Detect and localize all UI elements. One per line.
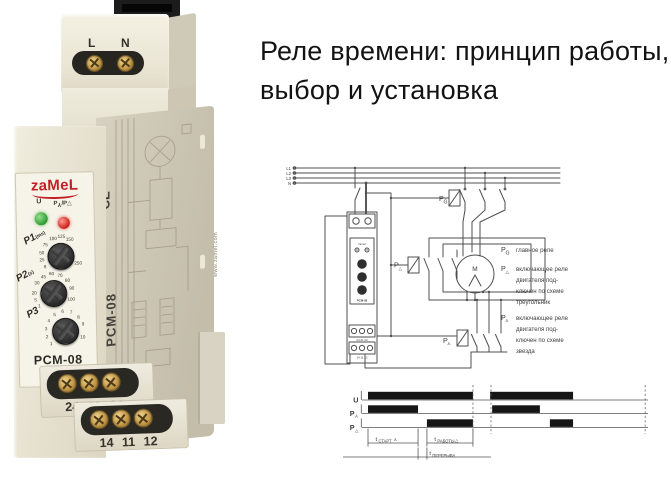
mini-terminals-2: 14 11 12 bbox=[356, 356, 367, 360]
knob-scale-value: 4 bbox=[42, 318, 56, 323]
legend-text-line: ключен по схеме bbox=[516, 288, 564, 295]
legend-text-line: включающее реле bbox=[516, 266, 569, 273]
sub-symbol: G bbox=[505, 250, 509, 256]
side-vent-slot bbox=[200, 255, 205, 270]
timing-bar bbox=[368, 392, 473, 400]
timing-annotation: t bbox=[376, 437, 378, 443]
device-top-side-face bbox=[166, 13, 196, 96]
motor-symbol: M bbox=[456, 255, 494, 293]
legend-text-line: треугольник bbox=[516, 299, 550, 306]
bus-label-l3: L3 bbox=[286, 176, 291, 181]
side-vent-slot bbox=[200, 135, 205, 150]
delta-symbol: △ bbox=[505, 269, 509, 274]
legend-text-line: ключен по схеме bbox=[516, 337, 564, 344]
knob-scale-value: 1 bbox=[44, 341, 58, 346]
timing-bar bbox=[368, 405, 418, 413]
timing-annotation-sub: РАБОТЫ bbox=[437, 439, 455, 444]
legend-text-line: главное реле bbox=[516, 247, 554, 254]
title-line-2: выбор и установка bbox=[260, 71, 670, 110]
terminal-screw bbox=[89, 410, 109, 430]
relay-symbol: zamel PCM-08 24 21 22 14 11 12 bbox=[347, 212, 377, 363]
mini-model: PCM-08 bbox=[357, 299, 368, 303]
star-symbol: Y bbox=[354, 413, 358, 419]
timing-annotation-sub: СТАРТ bbox=[379, 439, 392, 444]
mini-brand: zamel bbox=[358, 242, 366, 246]
terminal-screw bbox=[117, 55, 134, 72]
terminal-screw bbox=[133, 408, 153, 428]
timing-bar bbox=[427, 419, 473, 427]
terminal-screw bbox=[86, 55, 103, 72]
terminal-recess bbox=[46, 368, 139, 400]
timing-bar bbox=[490, 392, 573, 400]
mini-terminals-1: 24 21 22 bbox=[356, 338, 368, 342]
title-line-1: Реле времени: принцип работы, bbox=[260, 32, 670, 71]
bus-label-n: N bbox=[288, 181, 291, 186]
knob-scale-value: 3 bbox=[39, 326, 53, 331]
terminal-recess bbox=[80, 404, 173, 436]
terminal-screw bbox=[57, 374, 77, 394]
timing-bar bbox=[492, 405, 540, 413]
delta-symbol: △ bbox=[455, 438, 459, 443]
generated-labels: PGP△PYPGглавное релеP△включающее реледви… bbox=[343, 194, 648, 460]
timing-bar bbox=[550, 419, 573, 427]
knob-scale-value: 10 bbox=[76, 335, 90, 340]
timing-row-label: P bbox=[350, 409, 355, 418]
timing-row-label: P bbox=[350, 423, 355, 432]
terminal-block-2: 14 11 12 bbox=[73, 398, 189, 452]
page-title: Реле времени: принцип работы, выбор и ус… bbox=[260, 32, 670, 110]
motor-label: M bbox=[472, 266, 477, 273]
legend-text-line: двигателя под- bbox=[516, 277, 558, 284]
front-label-panel: zaMeL U PY/P△ P1(ms) 8255075100125150250… bbox=[15, 171, 98, 388]
legend-text-line: двигателя под- bbox=[516, 326, 558, 333]
sub-symbol: G bbox=[443, 199, 447, 205]
knob-scale-value: 9 bbox=[76, 322, 90, 327]
terminal-row2-numbers: 14 11 12 bbox=[79, 433, 177, 450]
delta-symbol: △ bbox=[398, 266, 402, 271]
relay-device-photo: L N bbox=[0, 0, 245, 485]
contactor-main bbox=[449, 167, 506, 256]
legend-text-line: включающее реле bbox=[516, 315, 569, 322]
timing-annotation: t bbox=[434, 437, 436, 443]
slide-canvas: L N bbox=[0, 0, 671, 485]
timing-annotation: t bbox=[429, 451, 431, 457]
timing-annotation-sub: ПЕРЕРЫВА bbox=[432, 453, 455, 458]
star-symbol: Y bbox=[394, 437, 397, 442]
knob-scale-value: 2 bbox=[40, 334, 54, 339]
terminal-screw bbox=[101, 372, 121, 392]
side-url-text: www.zamel.com bbox=[213, 196, 219, 313]
timing-row-label: U bbox=[353, 396, 358, 405]
knob-scale-value: 8 bbox=[71, 314, 85, 319]
terminal-l-label: L bbox=[88, 36, 95, 50]
din-rail-notch bbox=[198, 332, 225, 424]
contactor-label: P bbox=[443, 336, 448, 345]
top-terminal-recess bbox=[72, 51, 144, 75]
terminal-screw bbox=[111, 409, 131, 429]
terminal-screw bbox=[79, 373, 99, 393]
terminal-n-label: N bbox=[121, 36, 130, 50]
wiring-diagram: L1 L2 L3 N zamel PCM-08 24 21 22 14 11 1… bbox=[255, 140, 671, 485]
legend-symbol: P bbox=[501, 313, 506, 322]
timing-row-sub: △ bbox=[355, 428, 359, 433]
knob-p3-label: P3 bbox=[25, 305, 41, 321]
legend-text-line: звезда bbox=[516, 348, 535, 355]
